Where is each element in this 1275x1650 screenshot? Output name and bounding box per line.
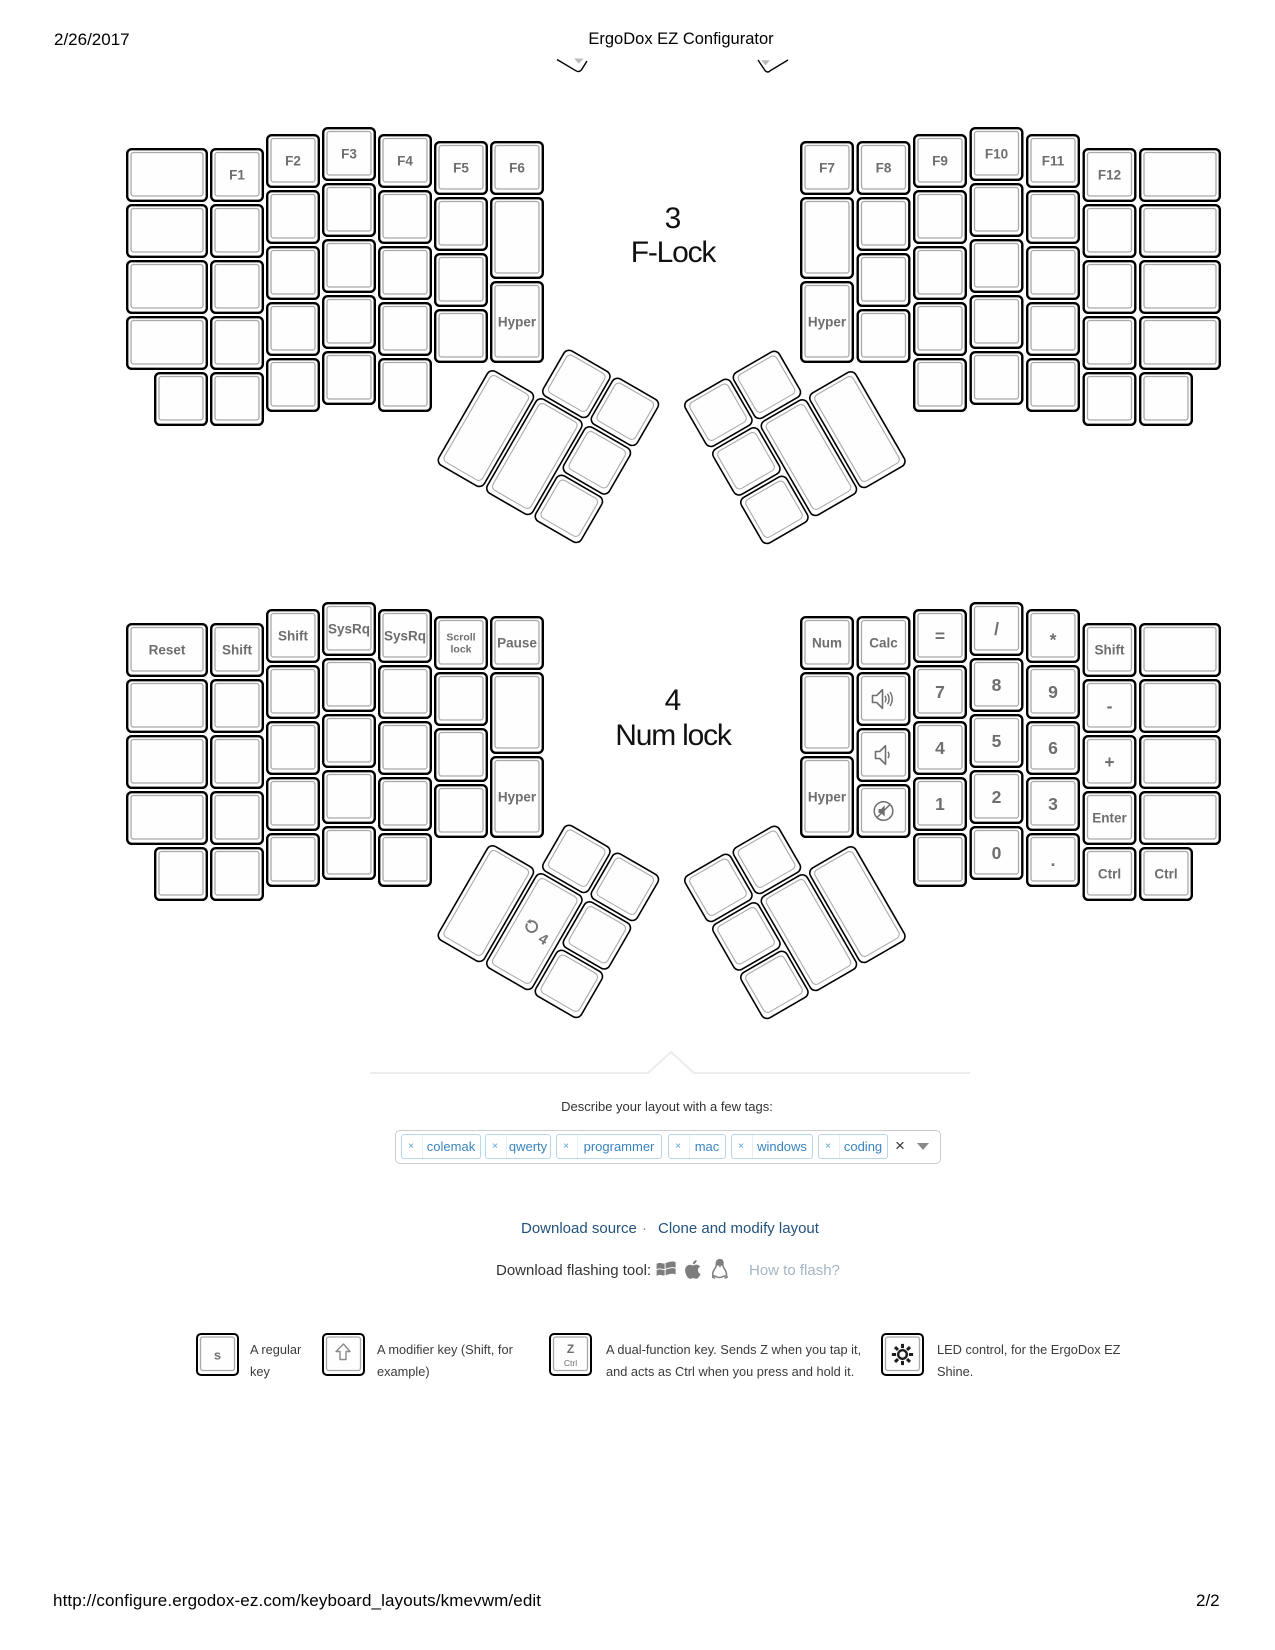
svg-text:Hyper: Hyper [808,315,847,330]
svg-text:s: s [214,1348,221,1363]
svg-text:+: + [1104,752,1114,772]
svg-text:F4: F4 [397,154,413,169]
svg-text:9: 9 [1048,682,1058,702]
svg-text:=: = [935,626,945,646]
svg-text:.: . [1051,850,1056,870]
svg-text:Hyper: Hyper [808,790,847,805]
svg-text:5: 5 [992,731,1002,751]
svg-text:F2: F2 [285,154,301,169]
svg-text:Ctrl: Ctrl [564,1358,577,1368]
svg-text:F1: F1 [229,168,245,183]
svg-text:F6: F6 [509,161,525,176]
svg-text:F8: F8 [876,161,892,176]
svg-text:F12: F12 [1098,168,1121,183]
svg-text:Ctrl: Ctrl [1154,867,1177,882]
svg-text:7: 7 [935,682,945,702]
svg-text:Shift: Shift [1095,643,1125,658]
svg-text:F3: F3 [341,147,357,162]
svg-text:Z: Z [567,1342,574,1356]
svg-text:-: - [1107,696,1113,716]
svg-text:Pause: Pause [497,636,537,651]
svg-text:Shift: Shift [278,629,308,644]
svg-text:F10: F10 [985,147,1008,162]
svg-text:4: 4 [935,738,945,758]
svg-text:lock: lock [450,644,471,656]
svg-text:8: 8 [992,675,1002,695]
svg-text:Calc: Calc [869,636,898,651]
svg-text:0: 0 [992,843,1002,863]
svg-text:Hyper: Hyper [498,790,537,805]
svg-text:Ctrl: Ctrl [1098,867,1121,882]
svg-text:Enter: Enter [1092,811,1127,826]
svg-text:F7: F7 [819,161,835,176]
svg-text:Num: Num [812,636,842,651]
svg-text:F9: F9 [932,154,948,169]
svg-text:*: * [1050,630,1057,650]
svg-text:F11: F11 [1042,154,1065,169]
svg-text:Scroll: Scroll [446,632,475,644]
svg-text:Reset: Reset [149,643,186,658]
svg-text:6: 6 [1048,738,1058,758]
svg-text:1: 1 [935,794,945,814]
svg-text:SysRq: SysRq [384,629,426,644]
svg-text:Hyper: Hyper [498,315,537,330]
svg-text:3: 3 [1048,794,1058,814]
svg-text:/: / [994,619,999,639]
svg-text:SysRq: SysRq [328,622,370,637]
svg-text:Shift: Shift [222,643,252,658]
svg-text:2: 2 [992,787,1002,807]
svg-text:F5: F5 [453,161,469,176]
